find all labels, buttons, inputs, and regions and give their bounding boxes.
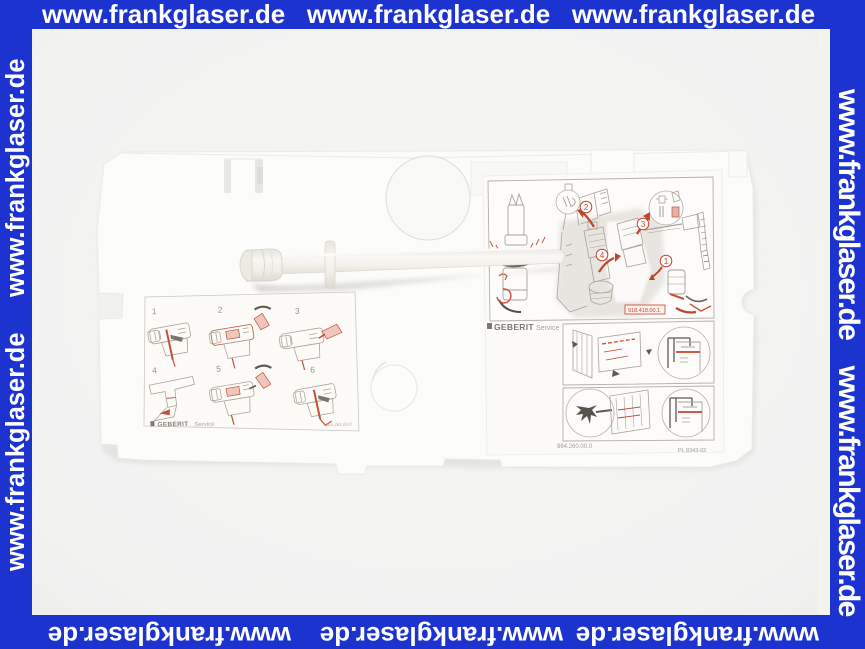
svg-text:5: 5 bbox=[216, 364, 221, 374]
svg-text:4: 4 bbox=[600, 251, 605, 260]
svg-text:GEBERIT: GEBERIT bbox=[157, 421, 188, 429]
svg-text:2: 2 bbox=[584, 203, 588, 212]
svg-text:964.260.00.0: 964.260.00.0 bbox=[557, 444, 593, 450]
svg-text:4: 4 bbox=[152, 365, 157, 375]
svg-text:1: 1 bbox=[664, 257, 668, 266]
svg-text:Service: Service bbox=[194, 422, 215, 428]
svg-text:PL 8343-02: PL 8343-02 bbox=[678, 448, 706, 454]
svg-text:GEBERIT: GEBERIT bbox=[494, 322, 534, 332]
svg-text:918.418.00.1: 918.418.00.1 bbox=[628, 308, 660, 314]
svg-text:Service: Service bbox=[536, 325, 559, 332]
svg-text:2: 2 bbox=[218, 305, 223, 315]
svg-text:3: 3 bbox=[295, 306, 300, 316]
svg-text:3: 3 bbox=[641, 220, 645, 229]
svg-text:6: 6 bbox=[310, 365, 315, 375]
svg-text:964 261.00.0: 964 261.00.0 bbox=[325, 422, 352, 428]
svg-text:1: 1 bbox=[152, 306, 157, 316]
